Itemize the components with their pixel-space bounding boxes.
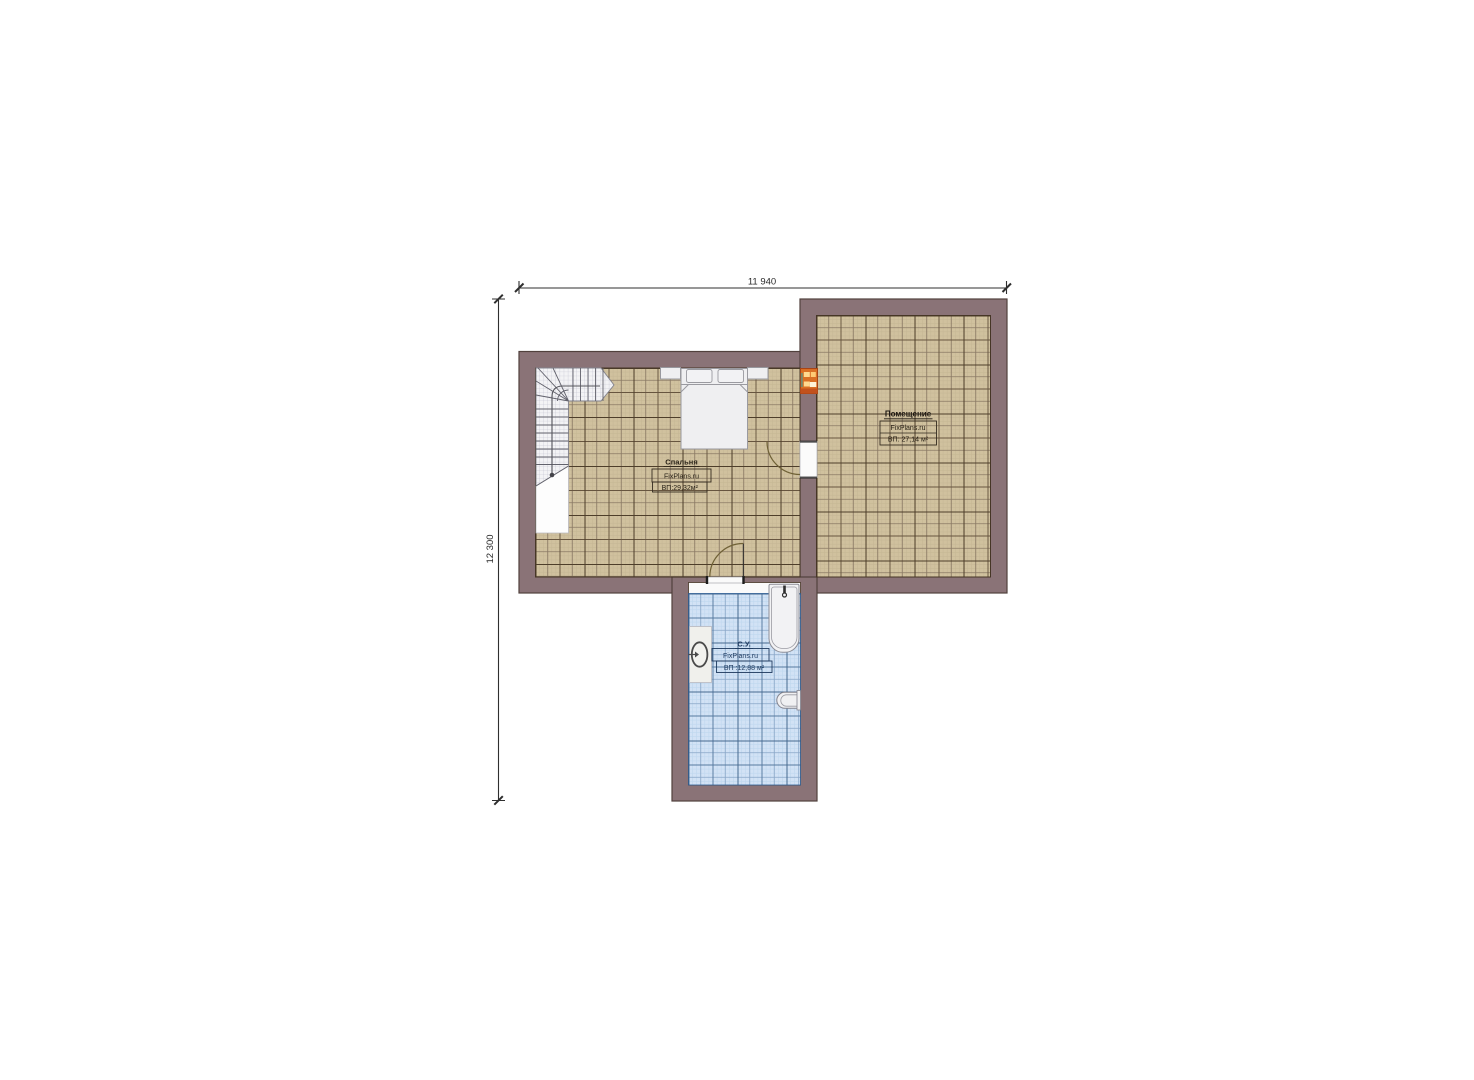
svg-text:С.У.: С.У. (737, 639, 750, 648)
svg-text:FixPlans.ru: FixPlans.ru (664, 474, 699, 481)
svg-text:ВП: 27,14 м²: ВП: 27,14 м² (888, 436, 929, 443)
svg-text:ВП :12,88 м²: ВП :12,88 м² (724, 665, 765, 672)
svg-text:Спальня: Спальня (665, 457, 697, 466)
svg-text:11 940: 11 940 (748, 277, 776, 288)
svg-text:ВП:29,32м²: ВП:29,32м² (662, 485, 699, 492)
svg-text:FixPlans.ru: FixPlans.ru (890, 425, 925, 432)
svg-text:Помещение: Помещение (885, 409, 932, 418)
svg-text:12 300: 12 300 (485, 534, 496, 563)
svg-text:FixPlans.ru: FixPlans.ru (723, 653, 758, 660)
